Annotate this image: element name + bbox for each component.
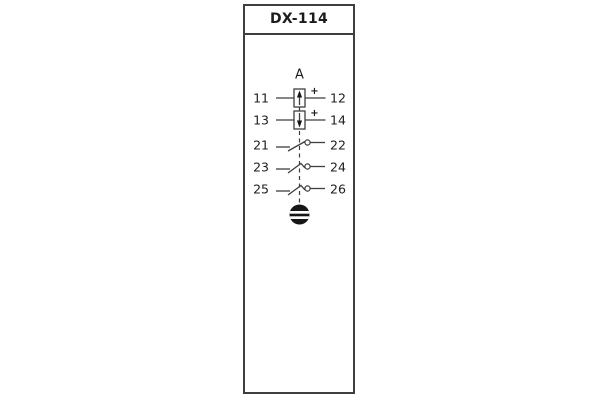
- terminal-label-right: 12: [330, 91, 346, 106]
- terminal-label-right: 14: [330, 113, 346, 128]
- polarized-element-arrow-down-icon: [294, 111, 305, 129]
- terminal-label-right: 22: [330, 138, 346, 153]
- terminal-label-left: 13: [253, 113, 269, 128]
- polarity-plus-mark: +: [310, 108, 318, 119]
- polarized-element-arrow-up-icon: [294, 89, 305, 107]
- screen-background: DX-114 A 11 + 12: [0, 0, 600, 400]
- polarity-plus-mark: +: [310, 86, 318, 97]
- terminal-label-left: 21: [253, 138, 269, 153]
- terminal-row: 11 + 12: [253, 86, 346, 107]
- relay-panel: DX-114 A 11 + 12: [243, 4, 355, 394]
- device-label: A: [295, 68, 304, 83]
- terminal-label-right: 24: [330, 160, 346, 175]
- terminal-label-left: 25: [253, 182, 269, 197]
- terminal-label-left: 23: [253, 160, 269, 175]
- terminal-label-right: 26: [330, 182, 346, 197]
- connection-schematic: A 11 + 12 1: [245, 35, 353, 392]
- terminal-row: 13 + 14: [253, 108, 346, 129]
- manual-reset-button-icon: [290, 205, 310, 225]
- terminal-label-left: 11: [253, 91, 269, 106]
- panel-title: DX-114: [245, 6, 353, 35]
- panel-body: A 11 + 12 1: [245, 35, 353, 392]
